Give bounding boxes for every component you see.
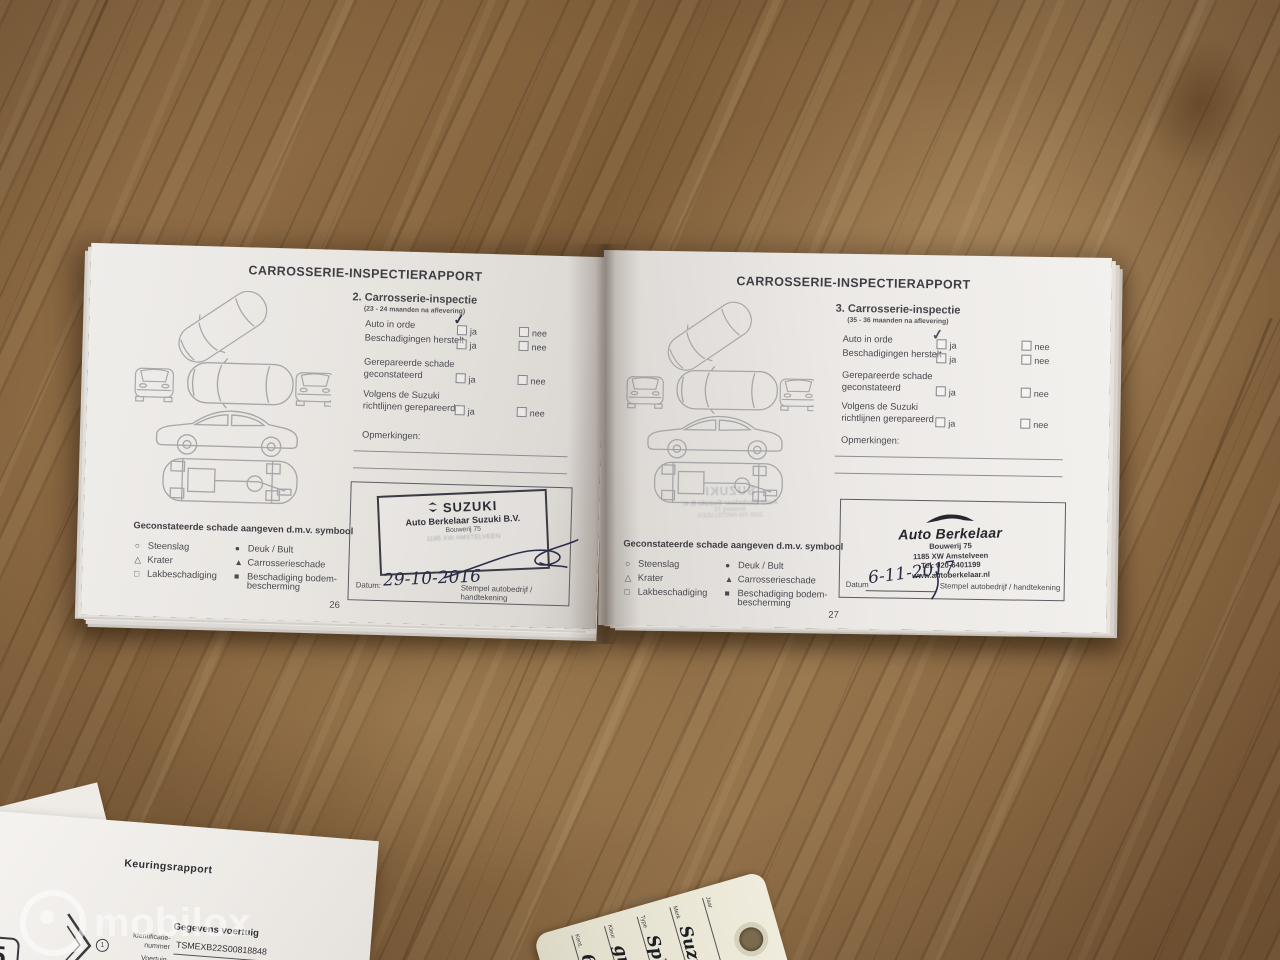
legend-item-wrap: bescherming xyxy=(247,580,300,591)
checkbox-nee: nee xyxy=(1020,415,1048,433)
booklet-left-page: CARROSSERIE-INSPECTIERAPPORT 2. Carrosse… xyxy=(81,243,606,629)
checkbox-ja: ja xyxy=(936,382,956,400)
checkbox-ja: ja xyxy=(456,335,477,354)
checkbox-ja: ja xyxy=(455,401,476,420)
stamp-box: SUZUKI Auto Berkelaar Suzuki B.V. Bouwer… xyxy=(347,481,572,606)
checkbox-nee: nee xyxy=(517,371,546,390)
legend-title: Geconstateerde schade aangeven d.m.v. sy… xyxy=(133,520,353,536)
checkbox-ja: ja xyxy=(935,413,955,431)
car-damage-diagrams xyxy=(122,284,334,510)
watermark-text: mobilox xyxy=(94,901,251,946)
opmerkingen-label: Opmerkingen: xyxy=(841,434,900,447)
ruled-line xyxy=(834,473,1062,478)
mobilox-logo-icon xyxy=(20,890,86,956)
handwritten-check: ✓ xyxy=(931,329,944,340)
checkbox-nee: nee xyxy=(1021,351,1049,369)
legend-title: Geconstateerde schade aangeven d.m.v. sy… xyxy=(623,538,843,551)
stempel-label: Stempel autobedrijf / handtekening xyxy=(460,583,568,604)
mobilox-watermark: mobilox xyxy=(20,890,251,956)
field-label: Auto in orde xyxy=(843,333,893,346)
suzuki-s-icon xyxy=(427,501,438,512)
checkbox-nee: nee xyxy=(1021,384,1049,402)
keuringsrapport-title: Keuringsrapport xyxy=(124,857,213,876)
field-label: Beschadigingen herstelt xyxy=(365,332,465,347)
checkbox-ja: ja xyxy=(455,369,476,388)
page-number: 26 xyxy=(329,600,340,611)
ruled-line xyxy=(835,456,1063,461)
checkbox-nee: nee xyxy=(516,403,545,422)
checkbox-nee: nee xyxy=(518,337,547,356)
page-title: CARROSSERIE-INSPECTIERAPPORT xyxy=(688,273,1018,292)
page-number: 27 xyxy=(828,610,839,621)
car-silhouette-icon xyxy=(924,512,976,525)
field-label: Beschadigingen herstelt xyxy=(842,347,941,361)
handwritten-check: ✓ xyxy=(453,314,466,325)
field-label: Gerepareerde schadegeconstateerd xyxy=(842,369,933,394)
photo-of-inspection-booklet: CARROSSERIE-INSPECTIERAPPORT 2. Carrosse… xyxy=(0,0,1280,960)
opmerkingen-label: Opmerkingen: xyxy=(362,429,421,443)
stamp-bleed-through: SUZUKI Auto Berkelaar Suzuki B.V. Bouwer… xyxy=(660,483,801,521)
row-number-circle: 5 xyxy=(94,955,108,960)
stempel-label: Stempel autobedrijf / handtekening xyxy=(940,581,1061,592)
ruled-line xyxy=(353,467,567,474)
checkbox-ja: ja xyxy=(936,349,956,367)
page-title: CARROSSERIE-INSPECTIERAPPORT xyxy=(200,262,530,285)
field-label: Auto in orde xyxy=(365,318,415,331)
stamp-box: Auto Berkelaar Bouwerij 75 1185 XW Amste… xyxy=(839,499,1067,602)
section-subheading: (35 - 36 maanden na aflevering) xyxy=(808,316,988,326)
legend-item: □Lakbeschadiging xyxy=(134,563,217,583)
field-label: Gerepareerde schadegeconstateerd xyxy=(364,356,455,383)
datum-label: Datum: xyxy=(356,580,381,590)
legend-item-wrap: bescherming xyxy=(737,597,790,608)
field-label: Volgens de Suzukirichtlijnen gerepareerd xyxy=(841,400,934,425)
car-damage-diagrams xyxy=(616,296,815,509)
license-plate-partial: -25 xyxy=(0,932,20,960)
booklet-right-page: CARROSSERIE-INSPECTIERAPPORT 3. Carrosse… xyxy=(598,250,1112,633)
ruled-line xyxy=(354,450,568,457)
section-heading: 3. Carrosserie-inspectie xyxy=(808,302,988,317)
field-label: Volgens de Suzukirichtlijnen gerepareerd xyxy=(363,388,456,415)
datum-label: Datum xyxy=(846,580,869,589)
legend-item: □Lakbeschadiging xyxy=(624,581,707,600)
